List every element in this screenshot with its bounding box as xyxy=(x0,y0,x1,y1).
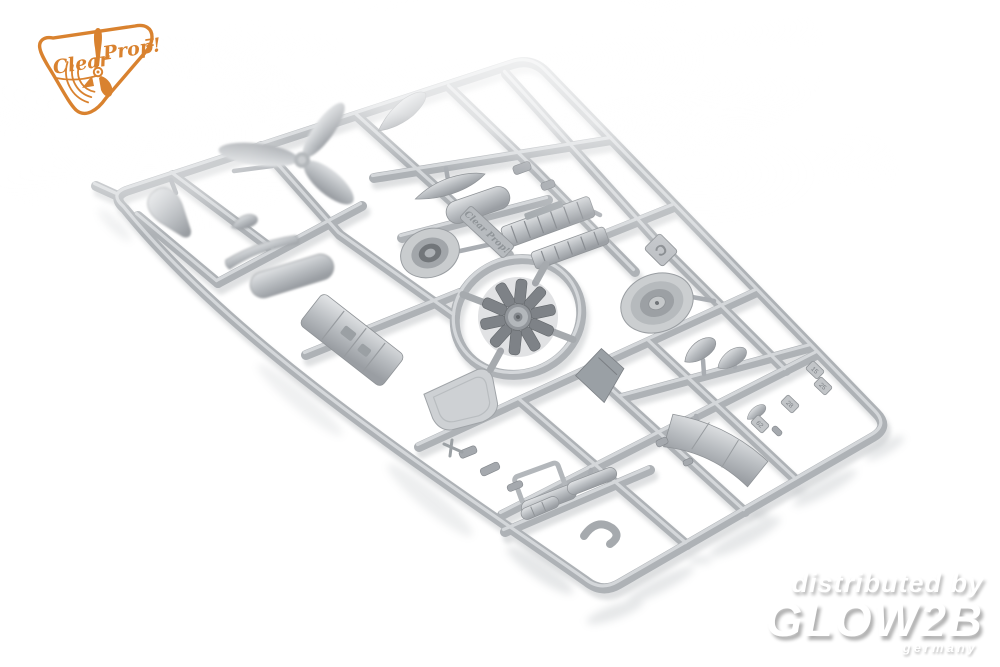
sprue-photo-canvas: Clear Prop! C 15 25 28 62 Clear Prop! xyxy=(0,0,1000,667)
distributor-watermark: distributed by GLOW2B germany xyxy=(766,569,984,654)
part-cockpit-floor xyxy=(299,292,406,388)
watermark-glow2b: GLOW2B xyxy=(766,595,984,644)
product-photo: Clear Prop! C 15 25 28 62 Clear Prop! xyxy=(0,0,1000,667)
part-intake-hook-pipe xyxy=(584,524,617,544)
